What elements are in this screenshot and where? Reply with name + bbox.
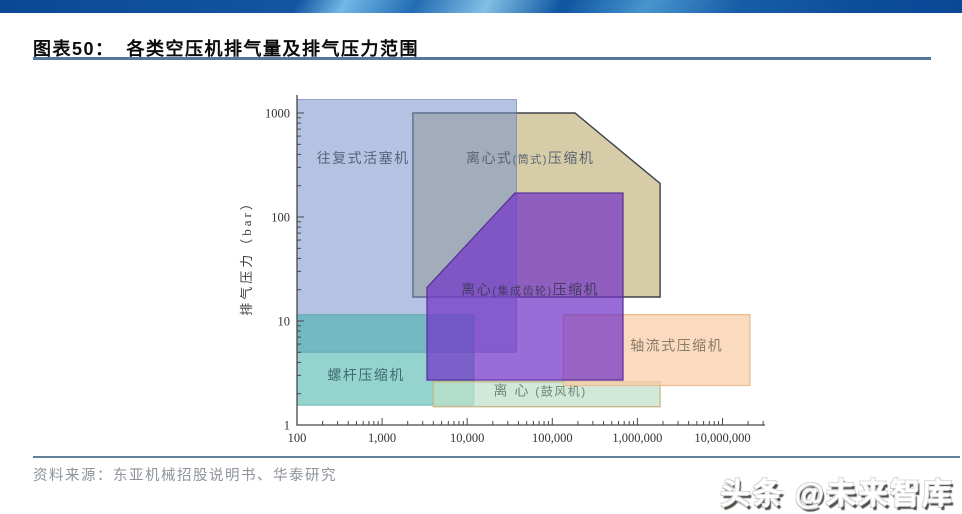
source-text: 资料来源：东亚机械招股说明书、华泰研究	[33, 464, 337, 485]
top-banner	[0, 0, 962, 13]
figure-label: 图表50：	[33, 39, 115, 59]
watermark-toutiao: 头条 @未来智库	[720, 469, 954, 513]
y-tick-label: 100	[271, 211, 290, 225]
label-centrifugal-blower: 离 心 (鼓风机)	[493, 382, 586, 398]
y-tick-label: 1	[284, 419, 290, 433]
y-tick-label: 10	[278, 315, 291, 329]
title-underline	[33, 57, 931, 60]
x-tick-label: 1,000,000	[612, 431, 662, 445]
banner-decoration	[291, 0, 564, 13]
compressor-range-chart: 1001,00010,000100,0001,000,00010,000,000…	[233, 85, 778, 470]
source-divider	[33, 456, 960, 458]
banner-decoration	[562, 0, 859, 13]
x-tick-label: 100	[288, 431, 307, 445]
y-axis-title: 排气压力（bar）	[239, 194, 254, 316]
figure-title-text: 各类空压机排气量及排气压力范围	[127, 39, 420, 59]
x-tick-label: 10,000	[450, 431, 484, 445]
x-tick-label: 10,000,000	[694, 431, 750, 445]
y-tick-label: 1000	[265, 107, 290, 121]
x-tick-label: 1,000	[368, 431, 396, 445]
x-tick-label: 100,000	[532, 431, 573, 445]
label-axial-flow-compressor: 轴流式压缩机	[630, 338, 723, 354]
label-screw-compressor: 螺杆压缩机	[327, 367, 405, 383]
page: 图表50：各类空压机排气量及排气压力范围 1001,00010,000100,0…	[0, 0, 962, 514]
label-reciprocating-piston-compressor: 往复式活塞机	[317, 150, 410, 166]
